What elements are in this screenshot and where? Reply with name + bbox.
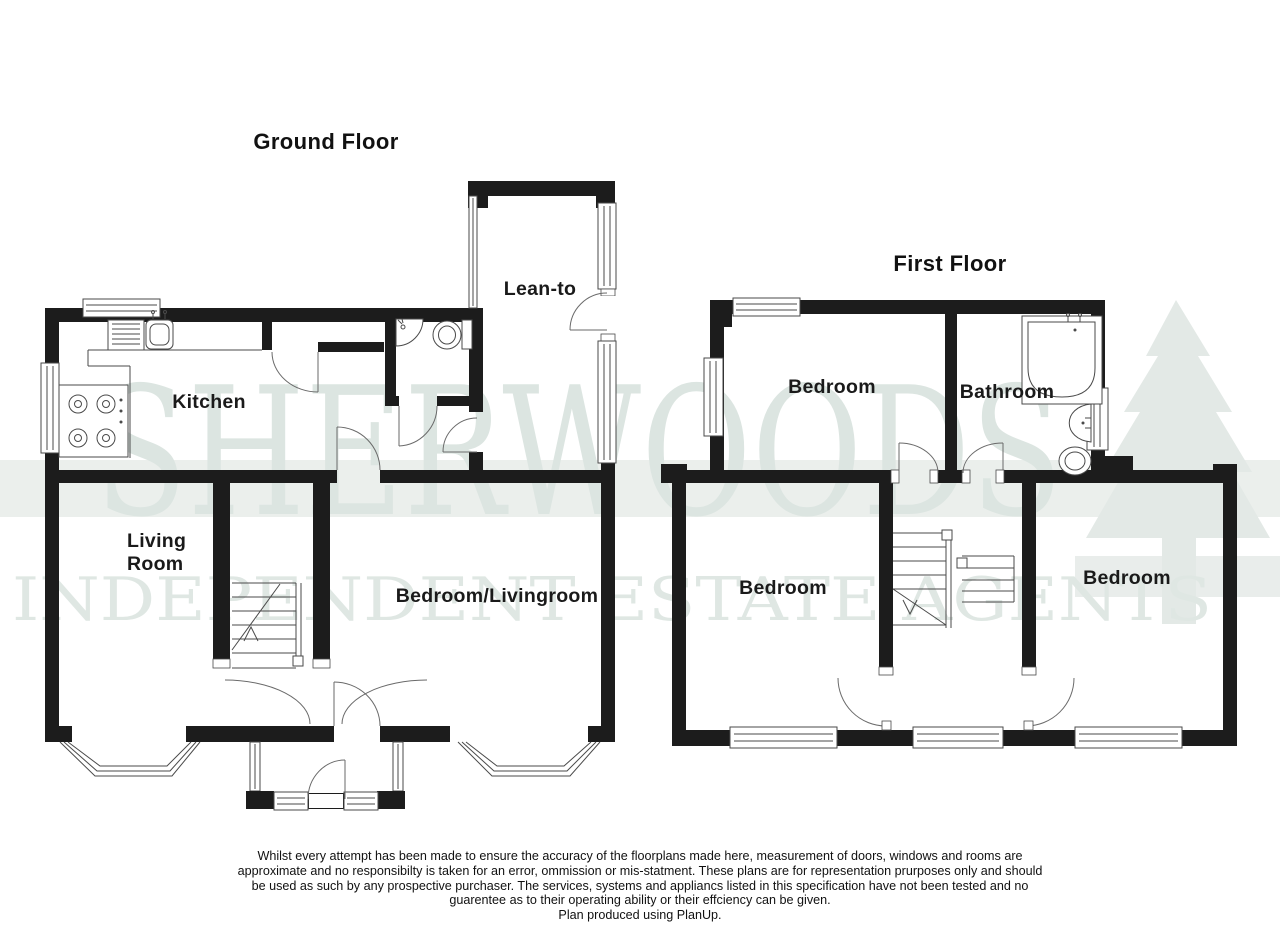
porch-door-opening [334, 726, 380, 742]
window [83, 299, 160, 317]
hall-arch-left [225, 680, 310, 724]
toilet-icon [1059, 447, 1091, 475]
room-label-lean-to: Lean-to [504, 278, 577, 300]
living-room-bay-window [60, 742, 200, 776]
window [730, 727, 837, 748]
window [393, 742, 403, 791]
ground-floor-title: Ground Floor [253, 129, 398, 154]
window [344, 792, 378, 810]
disclaimer-text: Whilst every attempt has been made to en… [0, 849, 1280, 923]
watermark-brand: SHERWOODS [95, 349, 1063, 556]
window [1075, 727, 1182, 748]
window [733, 298, 800, 316]
window [704, 358, 723, 436]
room-label-bedroom-left: Bedroom [739, 577, 827, 599]
entrance-porch [246, 742, 405, 810]
door-arc [334, 682, 380, 726]
bathroom-sink-icon [1069, 404, 1091, 442]
window [598, 341, 616, 463]
door-arc [838, 678, 886, 726]
door-arc [1026, 678, 1074, 726]
room-label-living-room-line2: Room [127, 553, 183, 575]
disclaimer-line: Whilst every attempt has been made to en… [0, 849, 1280, 864]
disclaimer-line: guarentee as to their operating ability … [0, 893, 1280, 908]
toilet-icon [433, 320, 472, 349]
disclaimer-line: approximate and no responsibilty is take… [0, 864, 1280, 879]
room-label-bedroom-livingroom: Bedroom/Livingroom [396, 585, 599, 607]
window [274, 792, 308, 810]
window [250, 742, 260, 791]
window [469, 196, 477, 308]
room-label-bathroom: Bathroom [960, 381, 1054, 403]
window [598, 203, 616, 289]
disclaimer-line: be used as such by any prospective purch… [0, 879, 1280, 894]
window [913, 727, 1003, 748]
hob-icon [59, 385, 128, 457]
wc-fixtures [396, 319, 472, 349]
room-label-kitchen: Kitchen [172, 391, 246, 413]
first-floor-title: First Floor [893, 251, 1006, 276]
room-label-living-room-line1: Living [127, 530, 186, 552]
window [41, 363, 59, 453]
planup-credit: Plan produced using PlanUp. [0, 908, 1280, 923]
floorplan-drawing: SHERWOODS INDEPENDENT ESTATE AGENTS [0, 0, 1280, 931]
bedroom-livingroom-bay-window [458, 742, 600, 776]
front-door-opening [309, 794, 343, 808]
room-label-bedroom-right: Bedroom [1083, 567, 1171, 589]
corner-sink-icon [396, 319, 423, 346]
floorplan-page: SHERWOODS INDEPENDENT ESTATE AGENTS [0, 0, 1280, 931]
room-label-bedroom-top: Bedroom [788, 376, 876, 398]
